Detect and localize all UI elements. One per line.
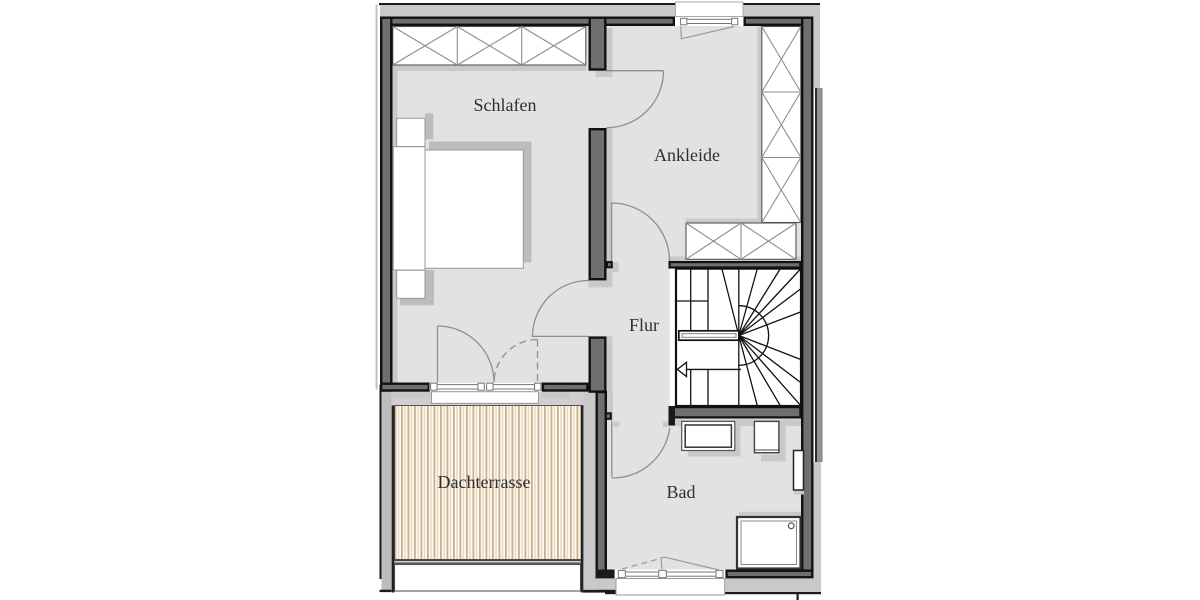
- svg-text:Bad: Bad: [667, 482, 696, 502]
- svg-text:Schlafen: Schlafen: [474, 95, 537, 115]
- svg-text:Ankleide: Ankleide: [654, 145, 720, 165]
- svg-text:Dachterrasse: Dachterrasse: [438, 472, 531, 492]
- svg-text:Flur: Flur: [629, 315, 659, 335]
